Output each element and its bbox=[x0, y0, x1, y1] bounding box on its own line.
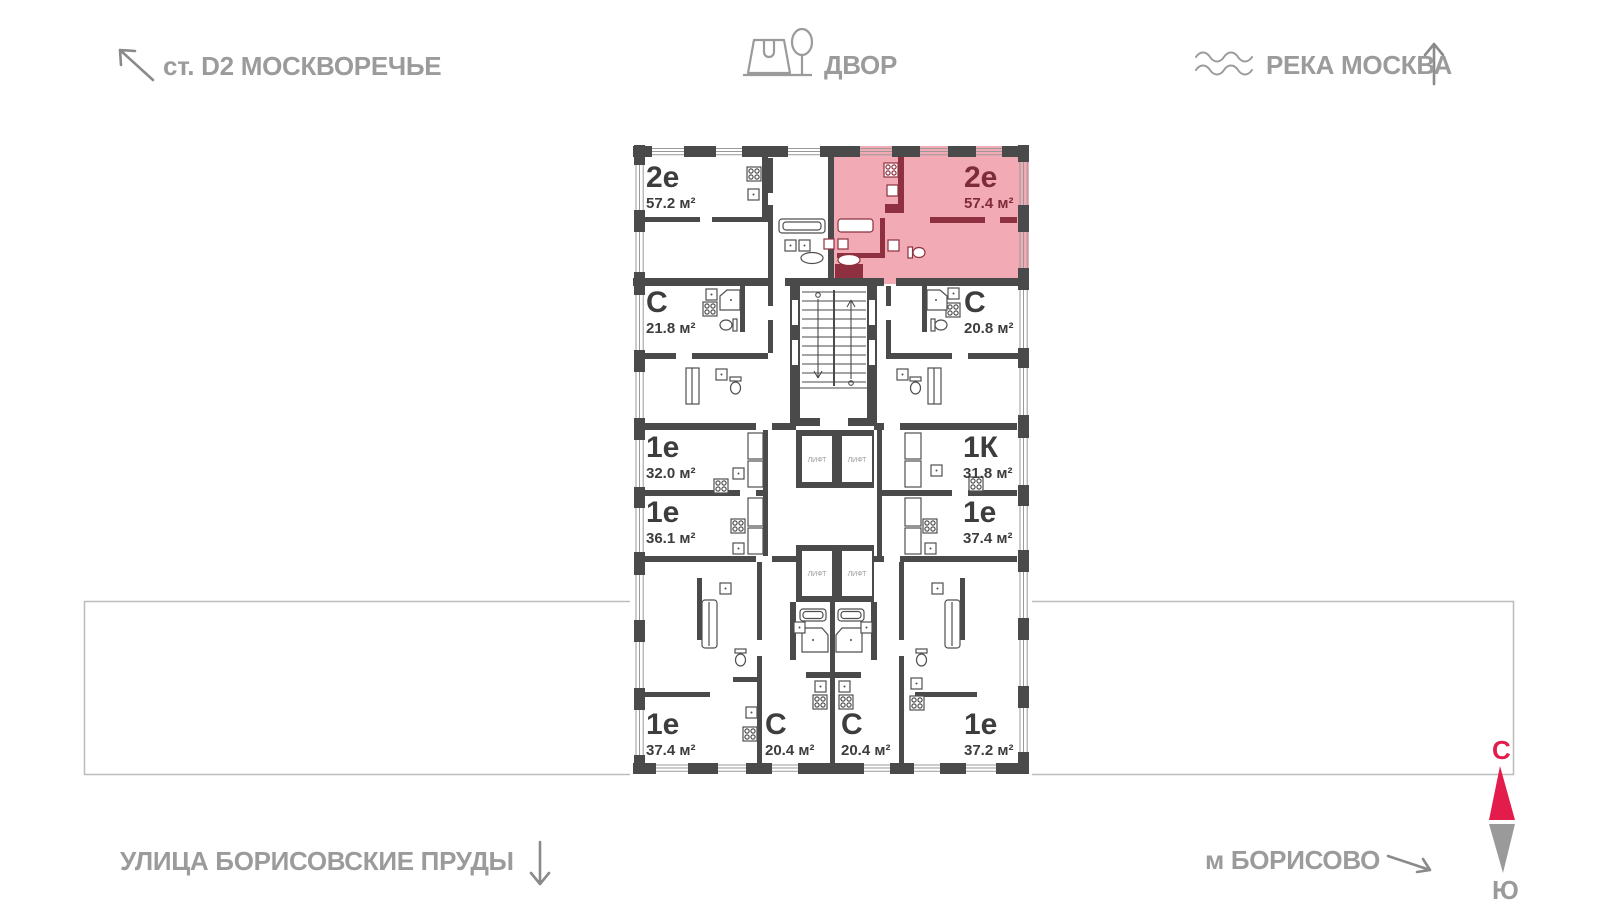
apartment-label-s-20-4-left[interactable]: С 20.4 м² bbox=[765, 710, 814, 758]
lift-label: ЛИФТ bbox=[848, 571, 868, 578]
apartment-label-s-20-8[interactable]: С 20.8 м² bbox=[964, 288, 1013, 336]
apartment-label-1e-37-4-right[interactable]: 1е 37.4 м² bbox=[963, 498, 1012, 546]
street-label: УЛИЦА БОРИСОВСКИЕ ПРУДЫ bbox=[120, 846, 514, 877]
station-label: ст. D2 МОСКВОРЕЧЬЕ bbox=[163, 51, 441, 82]
compass-needle bbox=[1489, 766, 1515, 873]
waves-icon bbox=[1196, 53, 1252, 75]
apartment-label-1e-36-1[interactable]: 1е 36.1 м² bbox=[646, 498, 695, 546]
compass-north-label: С bbox=[1492, 737, 1511, 763]
apartment-label-1e-32-0[interactable]: 1е 32.0 м² bbox=[646, 433, 695, 481]
floorplan-page: ЛИФТ ЛИФТ ЛИФТ ЛИФТ bbox=[0, 0, 1600, 920]
lift-label: ЛИФТ bbox=[808, 571, 828, 578]
yard-icon bbox=[743, 29, 812, 75]
arrow-down-right-icon bbox=[1388, 856, 1430, 872]
apartment-label-1e-37-2[interactable]: 1е 37.2 м² bbox=[964, 710, 1013, 758]
apartment-label-1e-37-4-bottom[interactable]: 1е 37.4 м² bbox=[646, 710, 695, 758]
river-label: РЕКА МОСКВА bbox=[1266, 50, 1452, 81]
lift-label: ЛИФТ bbox=[808, 457, 828, 464]
arrow-down-icon bbox=[531, 842, 549, 884]
arrow-up-left-icon bbox=[120, 50, 153, 80]
compass-south-label: Ю bbox=[1492, 877, 1519, 903]
apartment-label-2e-57-4[interactable]: 2е 57.4 м² bbox=[964, 163, 1013, 211]
apartment-label-2e-57-2[interactable]: 2е 57.2 м² bbox=[646, 163, 695, 211]
plan-canvas: ЛИФТ ЛИФТ ЛИФТ ЛИФТ bbox=[0, 0, 1600, 920]
metro-label: м БОРИСОВО bbox=[1205, 845, 1380, 876]
yard-label: ДВОР bbox=[824, 50, 897, 81]
lift-label: ЛИФТ bbox=[848, 457, 868, 464]
apartment-label-s-20-4-right[interactable]: С 20.4 м² bbox=[841, 710, 890, 758]
apartment-label-s-21-8[interactable]: С 21.8 м² bbox=[646, 288, 695, 336]
elevator-bank-upper: ЛИФТ ЛИФТ bbox=[796, 430, 874, 488]
apartment-label-1k-31-8[interactable]: 1К 31.8 м² bbox=[963, 433, 1012, 481]
elevator-bank-lower: ЛИФТ ЛИФТ bbox=[796, 545, 874, 602]
